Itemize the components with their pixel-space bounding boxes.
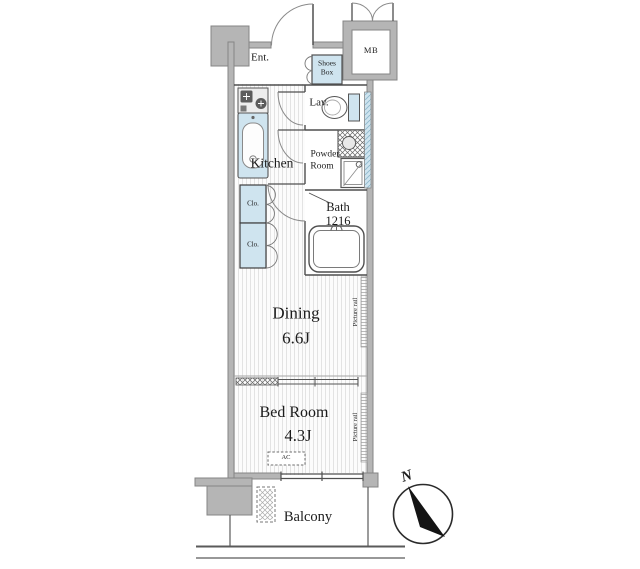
balcony-label: Balcony	[284, 510, 332, 525]
closet-lower-label: Clo.	[247, 242, 259, 249]
bath-label: Bath	[326, 201, 350, 214]
wall-top-right-segment	[313, 42, 344, 48]
floor-plan-drawing	[0, 0, 640, 569]
dining-size-label: 6.6J	[282, 330, 310, 347]
balcony-wall-bar	[195, 478, 252, 486]
dining-label: Dining	[272, 305, 319, 322]
lavatory-door-icon	[278, 92, 305, 125]
wall-bottom-right-block	[363, 473, 378, 487]
shoes-box-doors-icon	[305, 57, 312, 85]
powder-room-label-line2: Room	[310, 162, 333, 172]
powder-room-label-line1: Powder	[310, 150, 339, 160]
picture-rail-label-bedroom: Picture rail	[353, 413, 360, 442]
floor-plan: Ent. Shoes Box MB Lav. Powder Room Bath …	[0, 0, 640, 569]
pillar-bottom-left	[207, 486, 252, 515]
lavatory-label: Lav.	[309, 98, 328, 109]
stove-icon	[238, 88, 268, 113]
bathtub-icon	[309, 225, 364, 272]
closet-upper-label: Clo.	[247, 201, 259, 208]
ac-unit-label: AC	[281, 455, 290, 462]
shoes-box-label-line2: Box	[321, 68, 334, 76]
entrance-label: Ent.	[251, 53, 269, 64]
bath-size-label: 1216	[326, 215, 351, 228]
room-divider-sliding-door	[234, 376, 367, 387]
washbasin-icon	[338, 130, 365, 157]
water-heater-icon	[257, 487, 275, 522]
meter-box-doors-icon	[352, 3, 393, 21]
entrance-door-icon	[272, 4, 314, 46]
meter-box-label: MB	[364, 46, 378, 55]
bedroom-size-label: 4.3J	[284, 428, 311, 445]
closets	[240, 185, 266, 268]
picture-rail-strip-dining	[361, 277, 367, 347]
sliding-window-icon	[281, 472, 363, 482]
picture-rail-label-dining: Picture rail	[353, 298, 360, 327]
kitchen-label: Kitchen	[251, 156, 294, 170]
north-compass-icon	[394, 485, 453, 544]
pipe-space	[365, 92, 372, 188]
bedroom-label: Bed Room	[260, 405, 329, 421]
washing-machine-icon	[341, 159, 365, 188]
shoes-box-label-line1: Shoes	[318, 59, 336, 67]
wall-left	[228, 42, 234, 479]
wall-top-connector	[249, 42, 271, 48]
closet-folding-doors-icon	[266, 186, 277, 269]
picture-rail-strip-bedroom	[361, 393, 367, 462]
